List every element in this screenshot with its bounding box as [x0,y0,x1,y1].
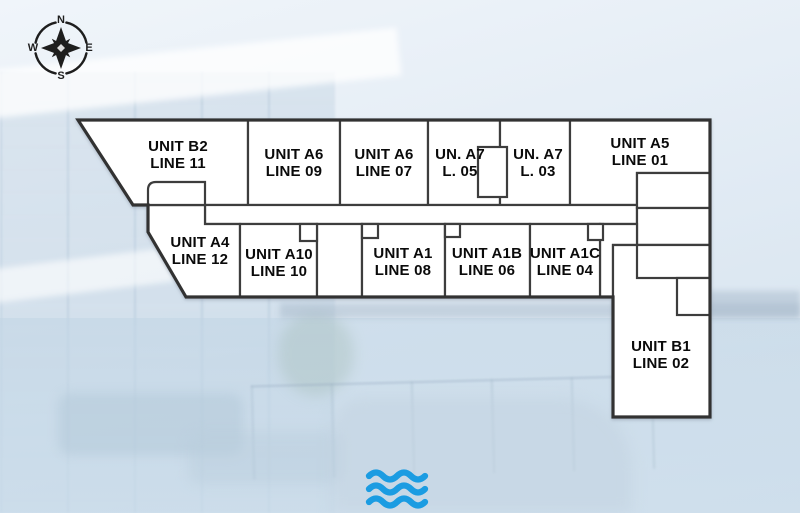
unit-name: UN. A7 [500,146,576,163]
unit-line: LINE 01 [580,152,700,169]
unit-name: UNIT A5 [580,135,700,152]
unit-line: LINE 10 [234,263,324,280]
unit-label-b2-line11[interactable]: UNIT B2 LINE 11 [108,138,248,172]
unit-line: LINE 08 [358,262,448,279]
unit-name: UNIT A1C [520,245,610,262]
unit-line: LINE 07 [339,163,429,180]
unit-label-b1-line02[interactable]: UNIT B1 LINE 02 [611,338,711,372]
water-waves-icon [369,473,425,506]
wall-notch [445,224,460,237]
unit-name: UNIT A10 [234,246,324,263]
wall-notch [362,224,378,238]
unit-label-a10-line10[interactable]: UNIT A10 LINE 10 [234,246,324,280]
unit-line: LINE 04 [520,262,610,279]
unit-line: L. 05 [422,163,498,180]
unit-label-a6-line09[interactable]: UNIT A6 LINE 09 [249,146,339,180]
wall-notch [588,224,603,240]
wave-line [369,486,425,493]
compass-label-n: N [57,14,65,26]
unit-label-a5-line01[interactable]: UNIT A5 LINE 01 [580,135,700,169]
unit-name: UNIT B2 [108,138,248,155]
unit-line: LINE 09 [249,163,339,180]
floorplan-screen: N E S W [0,0,800,513]
compass-label-w: W [28,42,39,54]
unit-line: LINE 06 [442,262,532,279]
unit-label-a1b-line06[interactable]: UNIT A1B LINE 06 [442,245,532,279]
service-room [637,245,710,278]
unit-label-a7-line03[interactable]: UN. A7 L. 03 [500,146,576,180]
service-room [148,182,205,205]
unit-name: UNIT A6 [339,146,429,163]
wall-notch [300,224,317,241]
unit-name: UNIT A6 [249,146,339,163]
compass-label-s: S [57,70,64,82]
unit-label-a1-line08[interactable]: UNIT A1 LINE 08 [358,245,448,279]
service-room [637,173,710,208]
compass-label-e: E [85,42,92,54]
unit-label-a7-line05[interactable]: UN. A7 L. 05 [422,146,498,180]
unit-name: UNIT B1 [611,338,711,355]
service-room [637,208,710,245]
unit-name: UN. A7 [422,146,498,163]
wave-line [369,473,425,480]
corridor-region [205,205,637,224]
unit-line: L. 03 [500,163,576,180]
unit-label-a6-line07[interactable]: UNIT A6 LINE 07 [339,146,429,180]
unit-label-a1c-line04[interactable]: UNIT A1C LINE 04 [520,245,610,279]
unit-name: UNIT A1B [442,245,532,262]
unit-line: LINE 02 [611,355,711,372]
unit-line: LINE 11 [108,155,248,172]
wave-line [369,499,425,506]
unit-name: UNIT A1 [358,245,448,262]
service-room [677,278,710,315]
compass-rose-icon: N E S W [28,14,93,82]
